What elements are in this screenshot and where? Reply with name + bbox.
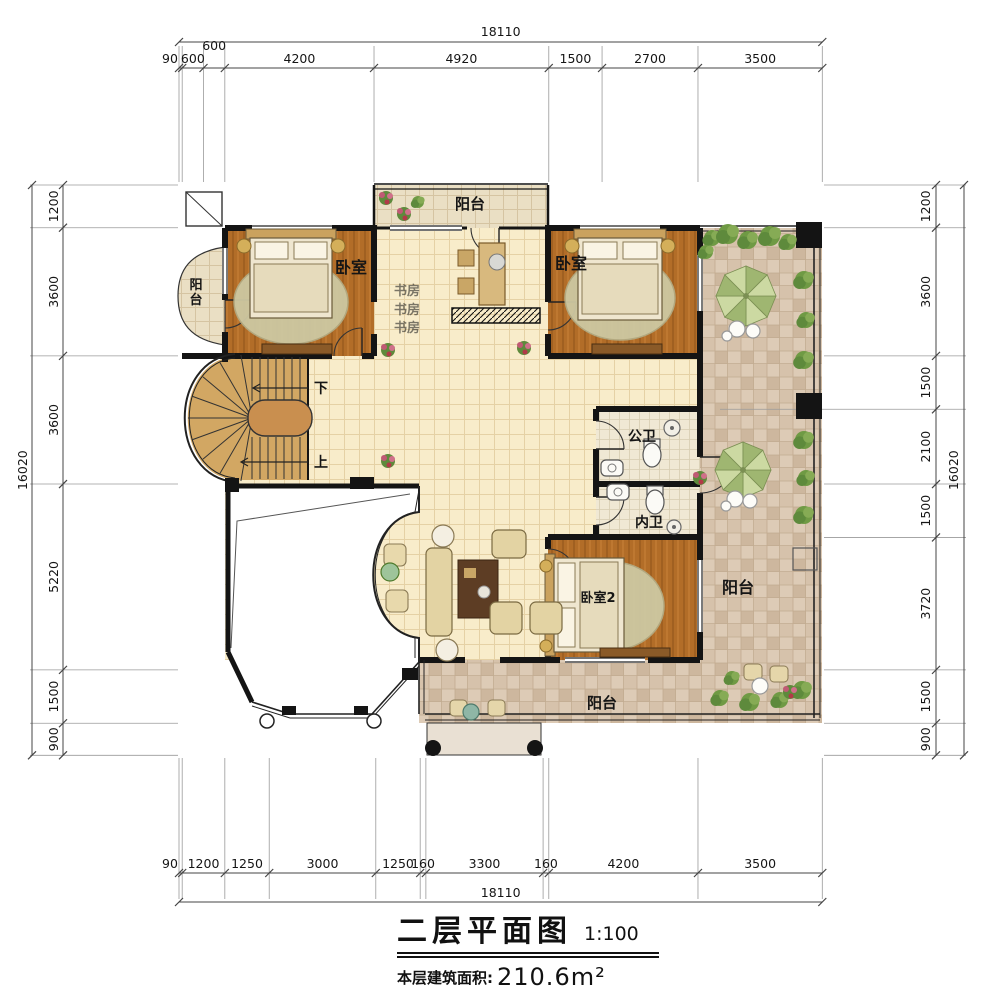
dim-top-seg: 600 <box>202 38 226 53</box>
dim-left-total: 16020 <box>15 450 30 490</box>
room-label-bath_private: 内卫 <box>635 514 663 531</box>
dim-bottom-seg: 160 <box>411 856 435 871</box>
room-label-stair_up: 上 <box>314 455 328 471</box>
dim-right-seg: 900 <box>918 727 933 751</box>
room-label-bedroom_right: 卧室 <box>555 254 587 273</box>
room-label-balcony_left: 阳 <box>189 278 202 293</box>
dim-left-seg: 1200 <box>46 190 61 222</box>
dim-left-seg: 1500 <box>46 681 61 713</box>
dim-bottom-seg: 3500 <box>744 856 776 871</box>
dim-top-seg: 600 <box>181 51 205 66</box>
dim-bottom-seg: 3000 <box>307 856 339 871</box>
dim-bottom-seg: 90 <box>162 856 178 871</box>
plan-scale: 1:100 <box>584 923 639 948</box>
dim-right-seg: 2100 <box>918 431 933 463</box>
room-label-balcony_top: 阳台 <box>455 195 485 213</box>
room-label-balcony_bottom: 阳台 <box>587 694 617 712</box>
area-value: 210.6m² <box>497 963 606 991</box>
room-label-stair_down: 下 <box>314 381 328 397</box>
plan-title: 二层平面图 <box>397 916 572 948</box>
room-label-bedroom_2: 卧室2 <box>580 590 615 606</box>
dim-bottom-seg: 1200 <box>188 856 220 871</box>
dim-top-seg: 90 <box>162 51 178 66</box>
title-underline-2 <box>397 956 659 958</box>
room-label-study: 书房 <box>394 302 420 318</box>
room-label-study: 书房 <box>394 283 420 299</box>
dim-right-seg: 3720 <box>918 588 933 620</box>
title-block: 二层平面图 1:100 本层建筑面积: 210.6m² <box>397 916 659 991</box>
dim-top-seg: 1500 <box>560 51 592 66</box>
room-label-study: 书房 <box>394 320 420 336</box>
dim-bottom-seg: 160 <box>534 856 558 871</box>
dim-bottom-seg: 4200 <box>607 856 639 871</box>
dim-left-seg: 5220 <box>46 561 61 593</box>
dim-right-seg: 1200 <box>918 190 933 222</box>
room-label-balcony_left: 台 <box>189 292 202 308</box>
dim-left-seg: 900 <box>46 727 61 751</box>
room-label-bath_public: 公卫 <box>628 429 656 445</box>
dim-right-seg: 1500 <box>918 367 933 399</box>
floor-plan-page: 1811090600600420049201500270035009012001… <box>0 0 1000 1006</box>
room-label-bedroom_left: 卧室 <box>335 258 367 277</box>
dim-right-seg: 1500 <box>918 495 933 527</box>
dim-bottom-seg: 1250 <box>382 856 414 871</box>
area-label: 本层建筑面积: <box>397 967 493 991</box>
dim-right-seg: 3600 <box>918 276 933 308</box>
title-underline-1 <box>397 952 659 954</box>
dim-left-seg: 3600 <box>46 404 61 436</box>
dim-top-total: 18110 <box>481 24 521 39</box>
dim-right-total: 16020 <box>946 450 961 490</box>
dim-bottom-seg: 3300 <box>469 856 501 871</box>
dim-left-seg: 3600 <box>46 276 61 308</box>
dim-bottom-total: 18110 <box>481 885 521 900</box>
dim-bottom-seg: 1250 <box>231 856 263 871</box>
dim-top-seg: 4200 <box>284 51 316 66</box>
floor-plan-canvas: 1811090600600420049201500270035009012001… <box>0 0 1000 1006</box>
dim-right-seg: 1500 <box>918 681 933 713</box>
dim-top-seg: 3500 <box>744 51 776 66</box>
dim-top-seg: 4920 <box>445 51 477 66</box>
dim-top-seg: 2700 <box>634 51 666 66</box>
room-label-terrace_right: 阳台 <box>722 578 754 597</box>
